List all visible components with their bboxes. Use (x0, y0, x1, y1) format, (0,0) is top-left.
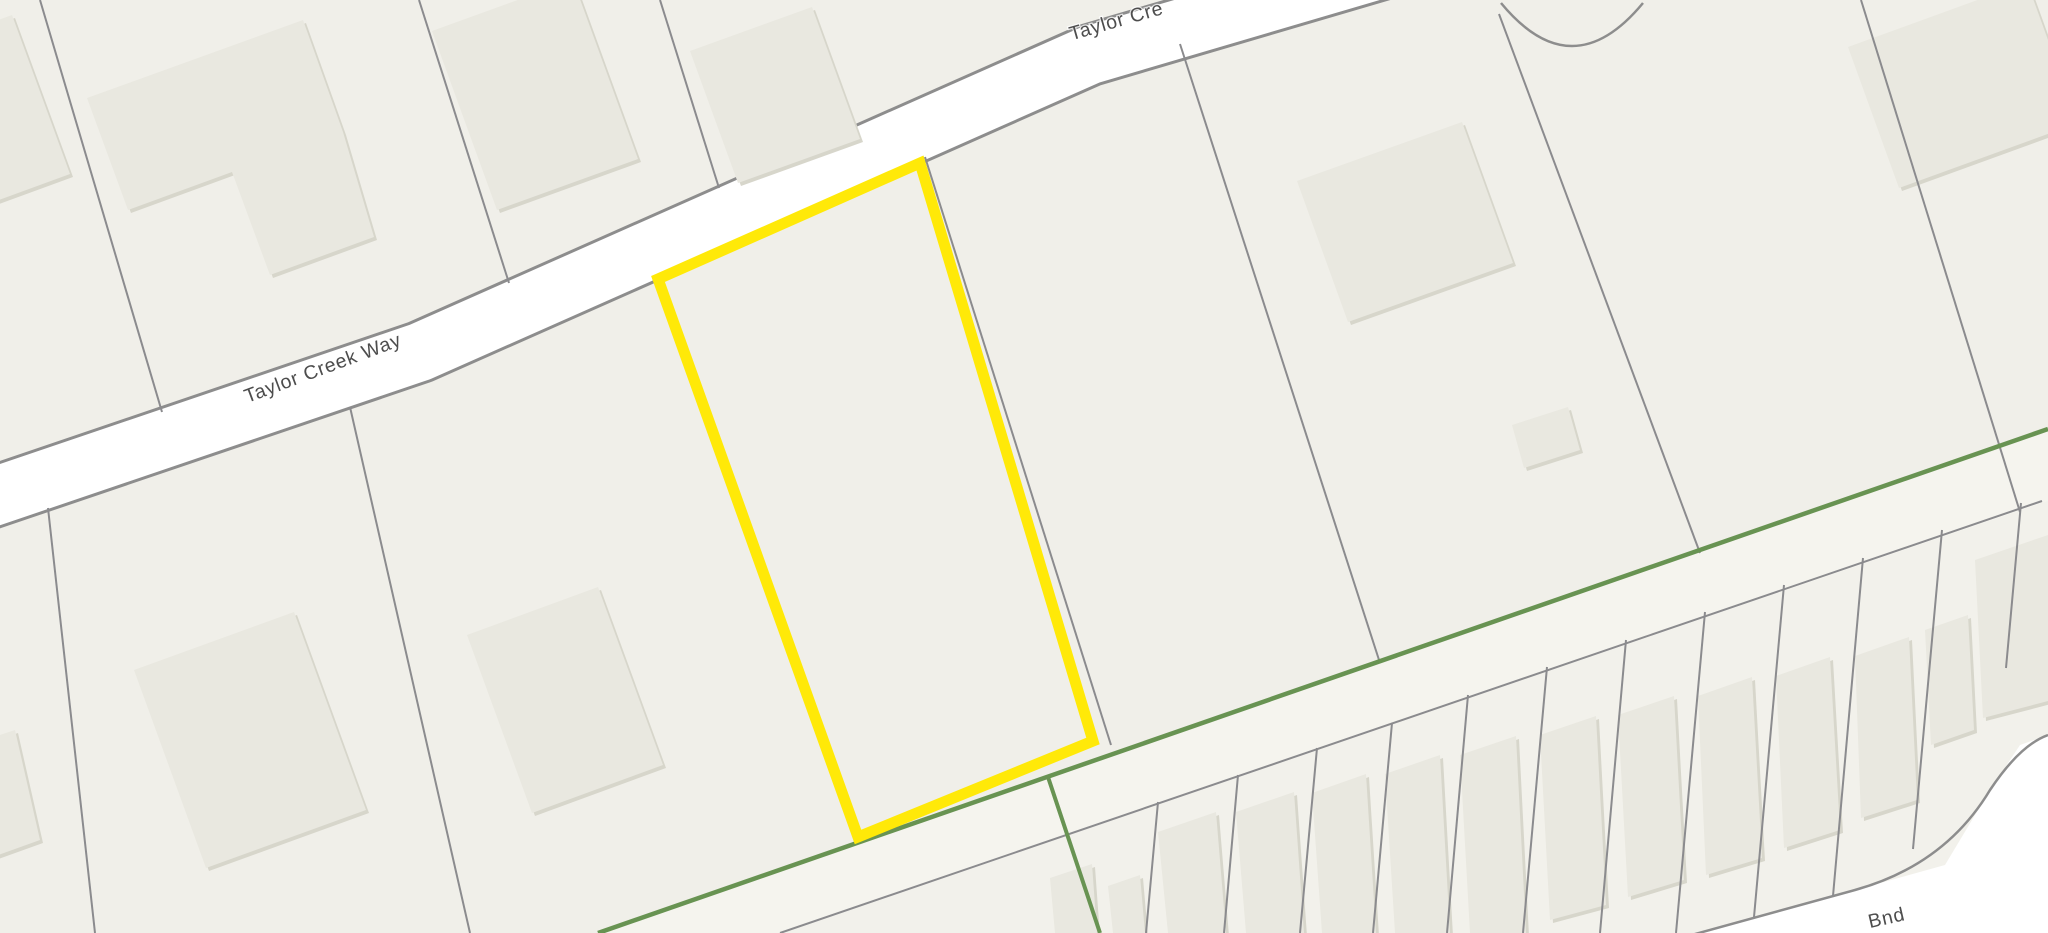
building-house (0, 730, 40, 858)
building-house (1848, 0, 2048, 188)
parcel-line (1499, 14, 1700, 553)
parcel-line (350, 407, 470, 933)
parcel-line (925, 157, 1111, 745)
building-townhouse (1385, 755, 1450, 933)
building-townhouse (1855, 637, 1917, 818)
building-house (432, 0, 638, 210)
selected-parcel-highlight[interactable] (658, 163, 1093, 837)
building-townhouse (1776, 657, 1840, 848)
building-house (134, 612, 366, 868)
building-house (87, 20, 374, 275)
parcel-line (1180, 44, 1380, 663)
building-townhouse (1158, 812, 1226, 933)
building-shed (1512, 407, 1580, 468)
cul-de-sac-curve (1501, 3, 1643, 46)
parcel-line (40, 0, 162, 412)
building-townhouse (1618, 696, 1684, 897)
building-townhouse (1460, 736, 1526, 933)
building-townhouse (1540, 716, 1606, 920)
map-canvas[interactable]: Taylor Creek WayTaylor CreBnd (0, 0, 2048, 933)
building-house (467, 587, 663, 813)
building-house (1297, 122, 1513, 322)
building-house (0, 15, 70, 215)
parcel-line (48, 508, 95, 933)
building-townhouse (1236, 792, 1304, 933)
building-townhouse (1975, 535, 2048, 718)
parcel-map: Taylor Creek WayTaylor CreBnd (0, 0, 2048, 933)
building-townhouse (1698, 677, 1762, 875)
building-townhouse (1312, 774, 1376, 933)
